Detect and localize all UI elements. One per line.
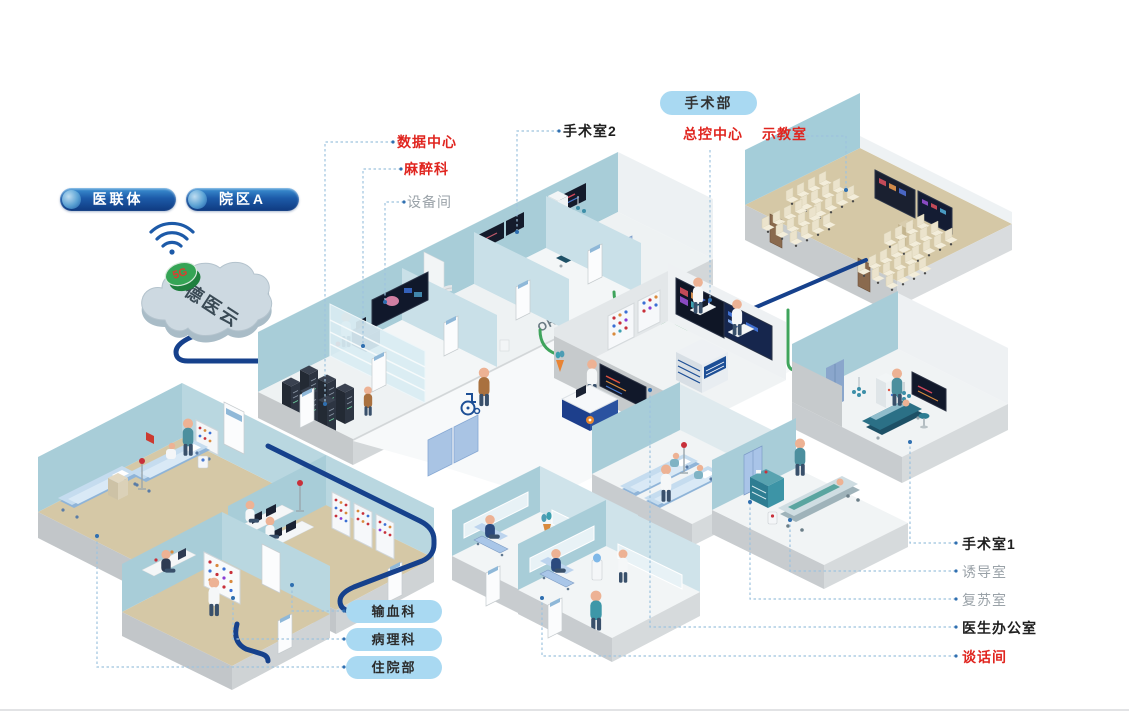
- cloud: 德医云 5G: [142, 259, 272, 343]
- label-operating-room-2: 手术室2: [563, 123, 617, 139]
- pill-blood-transfusion: 输血科: [346, 600, 442, 623]
- wifi-icon: [151, 223, 193, 254]
- label-doctors-office: 医生办公室: [962, 620, 1037, 636]
- label-induction-room: 诱导室: [962, 564, 1007, 580]
- label-equipment-room: 设备间: [407, 194, 452, 210]
- label-operating-room-1: 手术室1: [962, 536, 1016, 552]
- hospital-isometric-illustration: OR2 OR3: [0, 0, 1129, 721]
- label-demo-classroom: 示教室: [762, 126, 807, 142]
- pill-pathology: 病理科: [346, 628, 442, 651]
- label-recovery-room: 复苏室: [962, 592, 1007, 608]
- pill-inpatient-dept: 住院部: [346, 656, 442, 679]
- dept-pill-surgery: 手术部: [660, 91, 757, 115]
- room-operating-1: [792, 291, 1008, 483]
- label-master-control: 总控中心: [683, 126, 743, 142]
- org-pill-campus-a[interactable]: 院区A: [186, 188, 299, 211]
- bottom-divider: [0, 709, 1129, 711]
- bedside-cabinet: [108, 473, 128, 500]
- water-dispenser: [592, 554, 602, 581]
- label-data-center: 数据中心: [397, 134, 457, 150]
- smart-hospital-diagram: OR2 OR3: [0, 0, 1129, 721]
- org-pill-medical-consortium[interactable]: 医联体: [60, 188, 176, 211]
- label-talk-room: 谈话间: [962, 649, 1007, 665]
- label-anesthesiology: 麻醉科: [404, 161, 449, 177]
